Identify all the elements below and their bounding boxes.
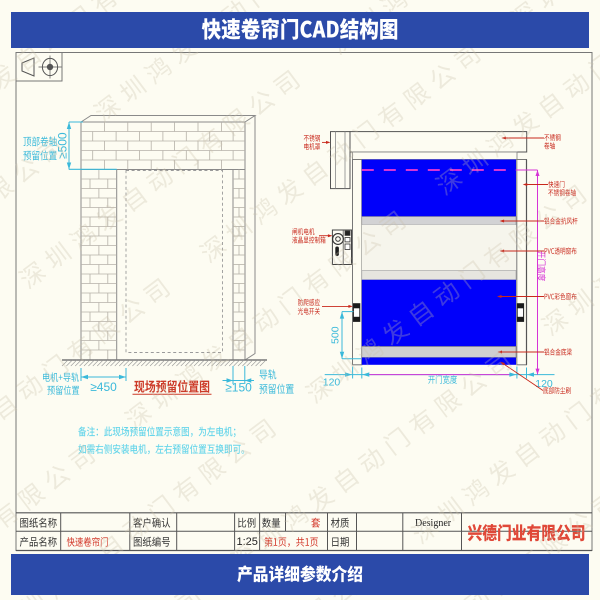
svg-text:≥150: ≥150: [225, 381, 252, 395]
svg-text:500: 500: [330, 326, 342, 344]
svg-text:1:25: 1:25: [237, 536, 258, 548]
svg-text:≥450: ≥450: [90, 380, 117, 394]
